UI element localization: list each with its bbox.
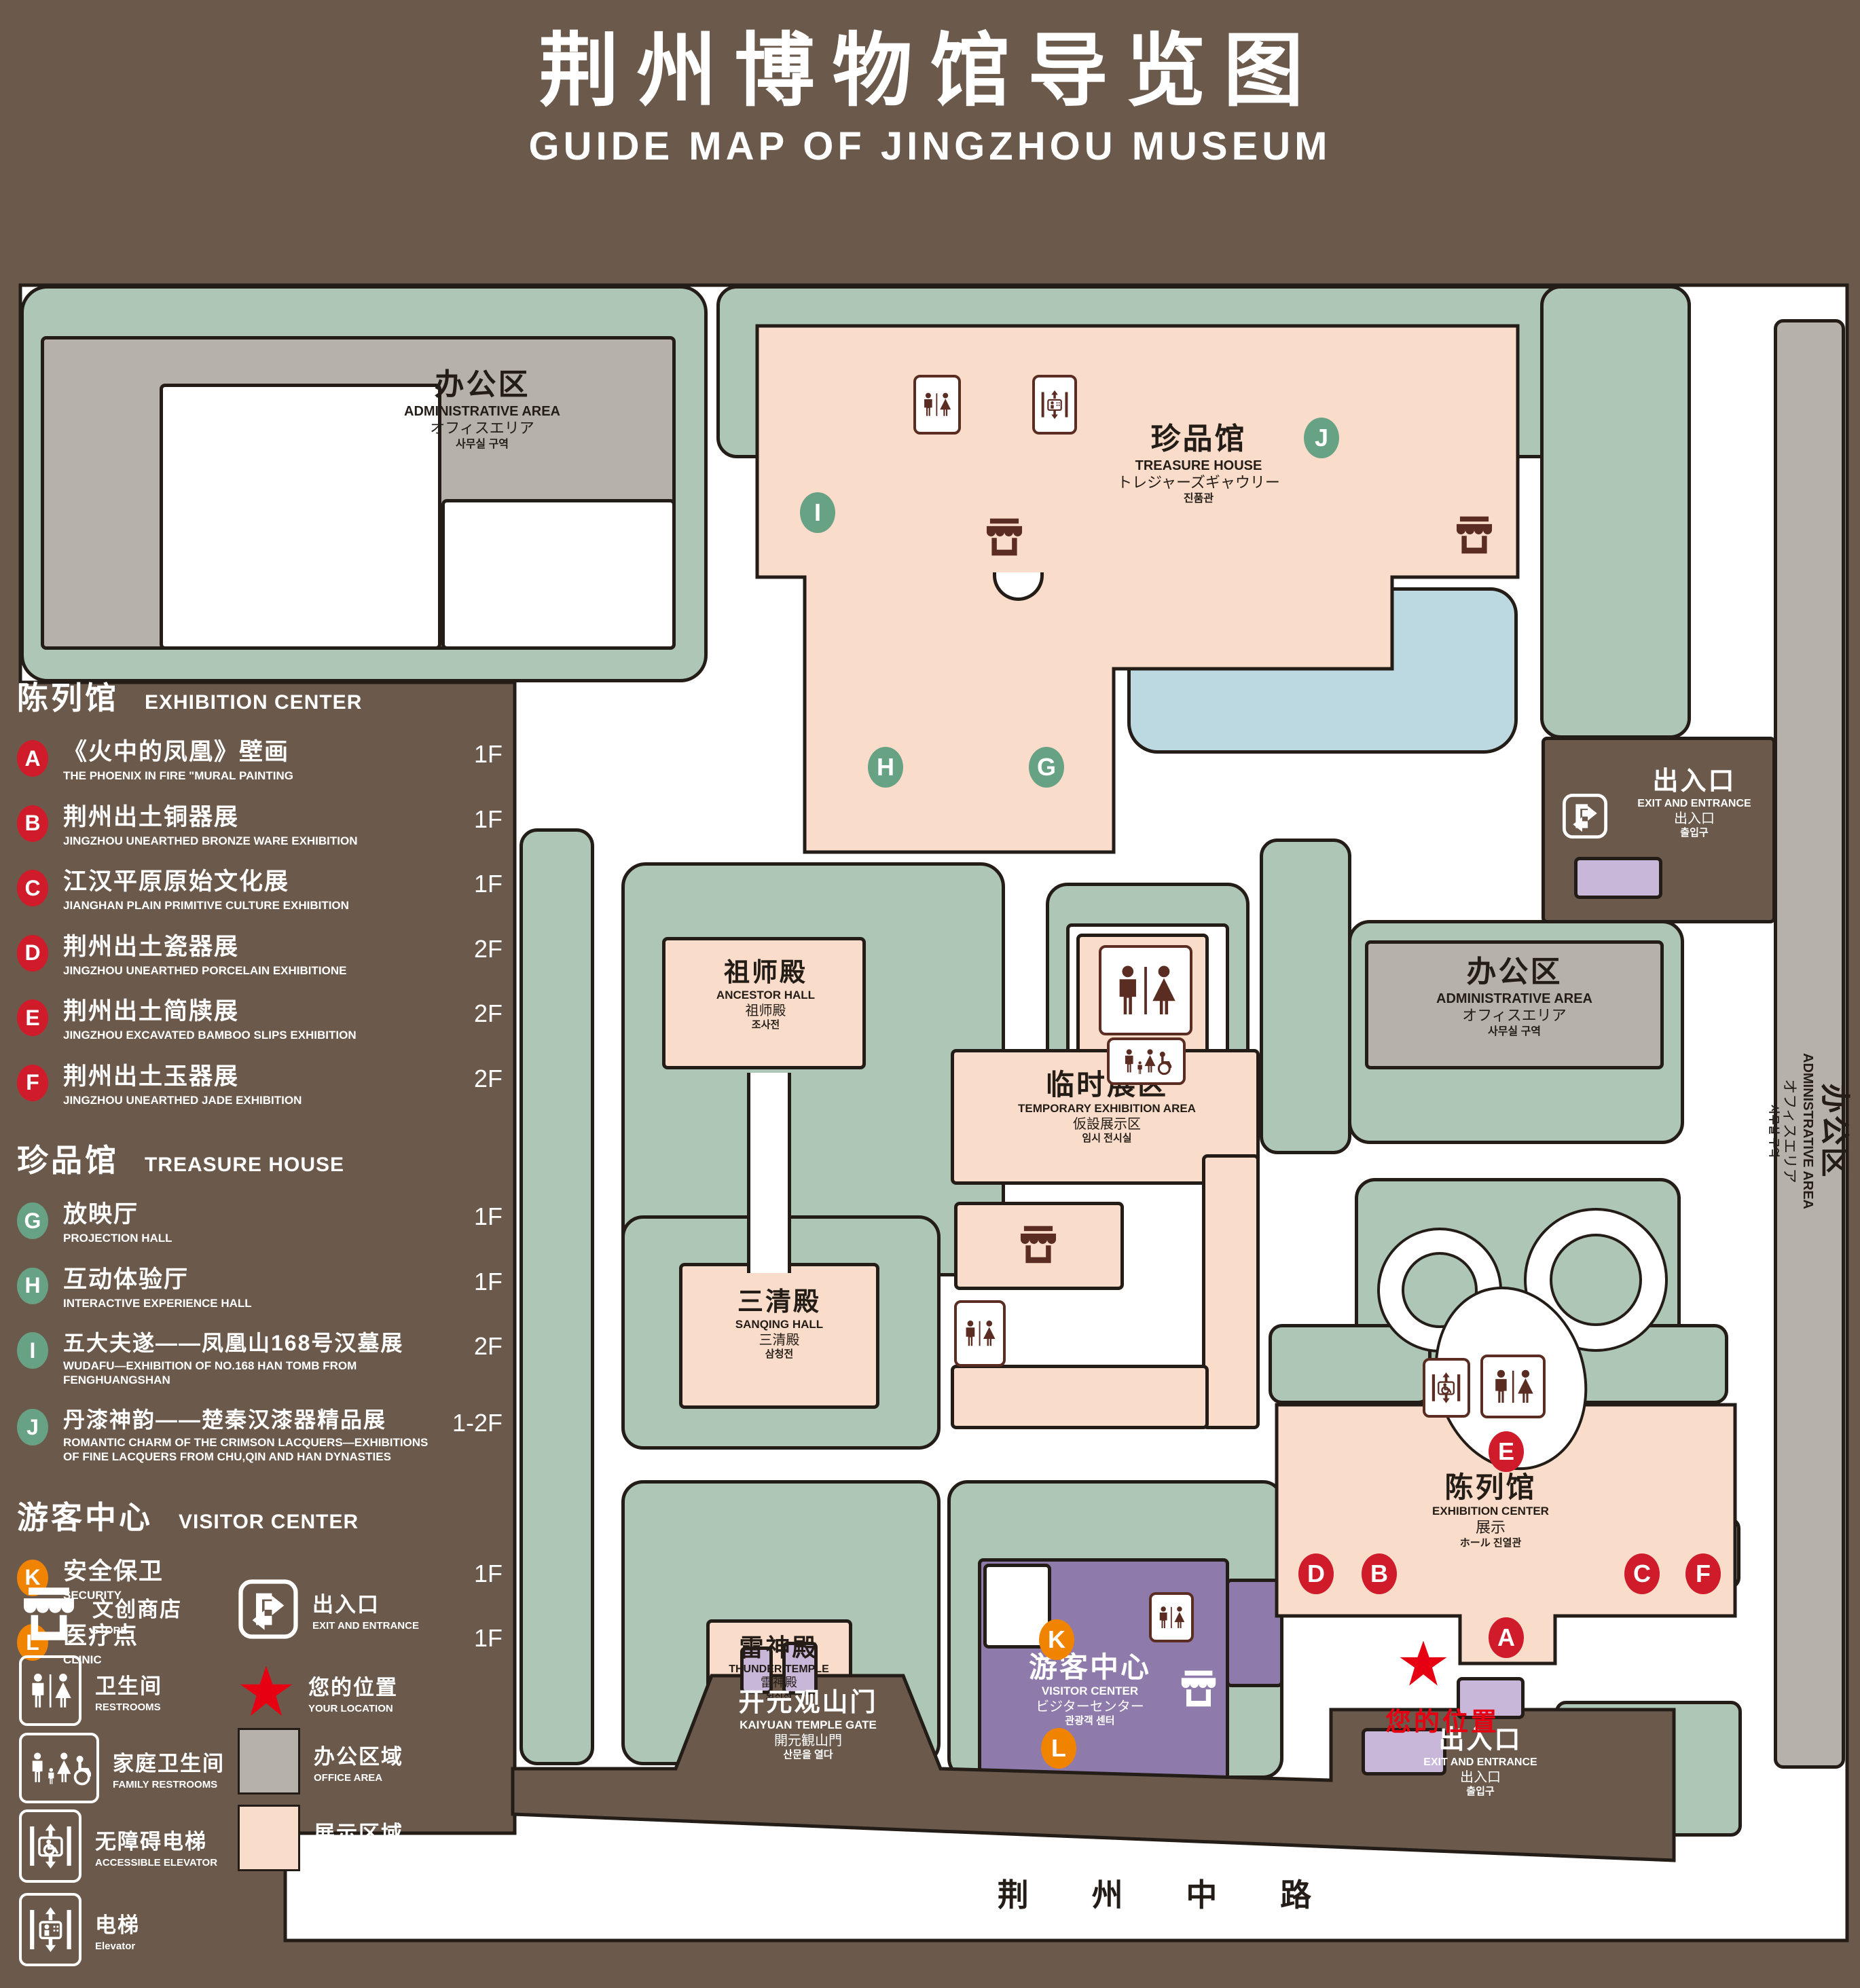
section-title-zh: 珍品馆: [17, 1136, 119, 1181]
item-zh: 荆州出土玉器展: [63, 1063, 441, 1090]
item-zh: 放映厅: [63, 1201, 441, 1228]
road-name: 荆 州 中 路: [937, 1871, 1399, 1915]
campus-left-strip: [519, 828, 594, 1765]
label-exit-top-right: 出入口 EXIT AND ENTRANCE 出入口 출입구: [1613, 766, 1776, 840]
admin-en: ADMINISTRATIVE AREA: [340, 403, 625, 420]
sanqing-ko: 삼청전: [682, 1348, 876, 1361]
admin-right-zh: 办公区: [1385, 954, 1643, 991]
admin-right-en: ADMINISTRATIVE AREA: [1385, 991, 1643, 1007]
guide-map-poster: 荆州博物馆导览图 GUIDE MAP OF JINGZHOU MUSEUM: [0, 0, 1860, 1988]
legend-item-g: G 放映厅 PROJECTION HALL 1F: [17, 1201, 503, 1246]
badge-b: B: [17, 805, 48, 842]
legend-symbol-elevator: 电梯 Elevator: [19, 1893, 140, 1966]
badge-g-marker: G: [1029, 747, 1064, 788]
ancestor-zh: 祖师殿: [669, 957, 862, 989]
temporary-ko: 임시 전시실: [961, 1133, 1253, 1145]
admin-strip-ja: オフィスエリア: [1780, 972, 1799, 1291]
visitor-zh: 游客中心: [988, 1650, 1192, 1685]
temporary-ja: 仮設展示区: [961, 1116, 1253, 1133]
legend-item-d: D 荆州出土瓷器展 JINGZHOU UNEARTHED PORCELAIN E…: [17, 934, 503, 978]
item-en: THE PHOENIX IN FIRE "MURAL PAINTING: [63, 769, 441, 783]
symbol-en: Elevator: [95, 1940, 140, 1952]
family-restroom-icon: [1107, 1037, 1186, 1085]
store-icon: [1017, 1222, 1059, 1267]
symbol-zh: 出入口: [312, 1587, 419, 1618]
badge-g: G: [17, 1202, 48, 1239]
ancestor-court: [621, 862, 1005, 1276]
family-restroom-icon: [19, 1733, 99, 1803]
exhibition-green-left: [1269, 1324, 1432, 1404]
label-gate: 开元观山门 KAIYUAN TEMPLE GATE 開元観山門 산문을 열다: [693, 1687, 924, 1762]
item-floor: 1F: [441, 1268, 503, 1296]
symbol-zh: 卫生间: [95, 1669, 162, 1699]
ancestor-en: ANCESTOR HALL: [669, 989, 862, 1003]
treasure-door-arc: [993, 572, 1044, 601]
item-zh: 五大夫遂——凤凰山168号汉墓展: [63, 1331, 441, 1356]
legend-symbol-office: 办公区域 OFFICE AREA: [238, 1728, 403, 1794]
item-en: JINGZHOU UNEARTHED PORCELAIN EXHIBITIONE: [63, 963, 441, 978]
item-zh: 《火中的凤凰》壁画: [63, 739, 441, 766]
campus-mid-strip: [1260, 839, 1351, 1154]
symbol-zh: 办公区域: [314, 1739, 403, 1770]
admin-right-ko: 사무실 구역: [1385, 1025, 1643, 1039]
section-title-en: TREASURE HOUSE: [145, 1154, 344, 1177]
exit-tr-ko: 출입구: [1613, 827, 1776, 839]
legend-sidebar: 陈列馆 EXHIBITION CENTER A 《火中的凤凰》壁画 THE PH…: [17, 674, 503, 1688]
admin-zh: 办公区: [340, 367, 625, 403]
item-floor: 1-2F: [441, 1409, 503, 1437]
item-floor: 2F: [441, 1065, 503, 1093]
symbol-en: YOUR LOCATION: [308, 1703, 398, 1714]
legend-symbol-family: 家庭卫生间 FAMILY RESTROOMS: [19, 1733, 225, 1803]
item-floor: 1F: [441, 1560, 503, 1588]
exit-icon: [1562, 793, 1608, 839]
badge-j: J: [17, 1409, 48, 1446]
item-floor: 1F: [441, 870, 503, 898]
symbol-zh: 无障碍电梯: [95, 1824, 217, 1855]
badge-i-marker: I: [800, 492, 835, 533]
restroom-icon: [1480, 1355, 1546, 1418]
office-area-swatch: [238, 1728, 300, 1794]
admin-ko: 사무실 구역: [340, 438, 625, 452]
sanqing-en: SANQING HALL: [682, 1318, 876, 1332]
badge-j-marker: J: [1304, 418, 1339, 458]
symbol-zh: 您的位置: [308, 1670, 398, 1701]
badge-e: E: [17, 999, 48, 1036]
admin-right-ja: オフィスエリア: [1385, 1007, 1643, 1025]
item-zh: 荆州出土简牍展: [63, 998, 441, 1025]
badge-d: D: [17, 935, 48, 972]
label-admin-top-left: 办公区 ADMINISTRATIVE AREA オフィスエリア 사무실 구역: [340, 367, 625, 451]
elevator-icon: [1032, 375, 1077, 435]
exhibition-line3: 展示: [1389, 1519, 1592, 1537]
store-icon: [1178, 1667, 1219, 1710]
badge-b-marker: B: [1362, 1553, 1397, 1594]
symbol-en: RESTROOMS: [95, 1701, 162, 1713]
thunder-en: THUNDER TEMPLE: [708, 1663, 850, 1676]
badge-h: H: [17, 1268, 48, 1304]
legend-section-treasure: 珍品馆 TREASURE HOUSE: [17, 1136, 503, 1181]
restroom-icon: [954, 1300, 1006, 1367]
section-title-en: EXHIBITION CENTER: [145, 691, 362, 714]
legend-symbol-exit: 出入口 EXIT AND ENTRANCE: [238, 1577, 419, 1642]
badge-f: F: [17, 1065, 48, 1101]
symbol-zh: 展示区域: [314, 1816, 403, 1847]
symbol-en: ACCESSIBLE ELEVATOR: [95, 1857, 217, 1869]
item-en: JIANGHAN PLAIN PRIMITIVE CULTURE EXHIBIT…: [63, 898, 441, 913]
legend-symbol-accessible-elevator: 无障碍电梯 ACCESSIBLE ELEVATOR: [19, 1809, 217, 1883]
exit-tr-en: EXIT AND ENTRANCE: [1613, 797, 1776, 811]
legend-symbol-store: 文创商店 STORE: [19, 1585, 182, 1642]
label-admin-strip: 办公区 ADMINISTRATIVE AREA オフィスエリア 사무실 구역: [1774, 319, 1845, 1769]
item-en: JINGZHOU UNEARTHED JADE EXHIBITION: [63, 1093, 441, 1107]
ancestor-ja: 祖师殿: [669, 1003, 862, 1019]
gate-en: KAIYUAN TEMPLE GATE: [693, 1718, 924, 1733]
badge-l-marker: L: [1041, 1728, 1076, 1769]
treasure-ja: トレジャーズギャウリー: [1059, 474, 1338, 492]
visitor-center-wing: [1226, 1579, 1283, 1687]
temporary-en: TEMPORARY EXHIBITION AREA: [961, 1102, 1253, 1116]
badge-f-marker: F: [1685, 1553, 1721, 1594]
exhibition-green-right: [1569, 1324, 1728, 1404]
item-zh: 江汉平原原始文化展: [63, 868, 441, 896]
exit-b-ja: 出入口: [1399, 1769, 1562, 1786]
admin-notch: [441, 499, 676, 650]
store-icon: [19, 1585, 79, 1642]
treasure-en: TREASURE HOUSE: [1059, 458, 1338, 474]
ancestor-path: [747, 1073, 791, 1273]
admin-strip-zh: 办公区: [1815, 972, 1853, 1291]
lake: [1127, 587, 1518, 754]
restroom-icon: [1099, 945, 1192, 1035]
admin-strip-ko: 사무실 구역: [1766, 972, 1780, 1291]
symbol-zh: 家庭卫生间: [113, 1746, 225, 1777]
item-en: WUDAFU—EXHIBITION OF NO.168 HAN TOMB FRO…: [63, 1359, 441, 1388]
item-en: ROMANTIC CHARM OF THE CRIMSON LACQUERS—E…: [63, 1435, 441, 1465]
label-treasure-house: 珍品馆 TREASURE HOUSE トレジャーズギャウリー 진품관: [1059, 421, 1338, 505]
item-zh: 荆州出土瓷器展: [63, 934, 441, 961]
item-zh: 互动体验厅: [63, 1266, 441, 1293]
accessible-elevator-icon: [1423, 1358, 1470, 1418]
legend-item-a: A 《火中的凤凰》壁画 THE PHOENIX IN FIRE "MURAL P…: [17, 739, 503, 784]
legend-item-h: H 互动体验厅 INTERACTIVE EXPERIENCE HALL 1F: [17, 1266, 503, 1311]
badge-h-marker: H: [868, 747, 903, 788]
thunder-zh: 雷神殿: [708, 1633, 850, 1663]
exhibition-green-se2: [1555, 1701, 1742, 1837]
exit-tr-ja: 出入口: [1613, 811, 1776, 827]
item-floor: 1F: [441, 1202, 503, 1231]
ancestor-ko: 조사전: [669, 1019, 862, 1031]
lake-island: [951, 621, 1104, 676]
your-location-star-icon: [238, 1665, 295, 1719]
item-en: JINGZHOU UNEARTHED BRONZE WARE EXHIBITIO…: [63, 834, 441, 848]
gate-block-top-right: [1574, 857, 1662, 899]
admin-strip-en: ADMINISTRATIVE AREA: [1798, 972, 1815, 1291]
admin-ja: オフィスエリア: [340, 420, 625, 438]
badge-e-marker: E: [1489, 1431, 1524, 1472]
store-icon: [983, 515, 1025, 559]
label-visitor-center: 游客中心 VISITOR CENTER ビジターセンター 관광객 센터: [988, 1650, 1192, 1728]
legend-symbol-location: 您的位置 YOUR LOCATION: [238, 1665, 398, 1719]
item-floor: 1F: [441, 1624, 503, 1653]
legend-item-e: E 荆州出土简牍展 JINGZHOU EXCAVATED BAMBOO SLIP…: [17, 998, 503, 1043]
elevator-icon: [19, 1893, 81, 1966]
symbol-zh: 电梯: [95, 1908, 140, 1938]
visitor-en: VISITOR CENTER: [988, 1685, 1192, 1699]
section-title-en: VISITOR CENTER: [179, 1511, 359, 1534]
badge-i: I: [17, 1332, 48, 1369]
restroom-icon: [19, 1655, 81, 1726]
temporary-bottom: [951, 1365, 1209, 1429]
display-area-swatch: [238, 1805, 300, 1871]
item-zh: 荆州出土铜器展: [63, 804, 441, 831]
symbol-en: STORE: [92, 1625, 182, 1636]
item-floor: 2F: [441, 935, 503, 963]
visitor-ja: ビジターセンター: [988, 1699, 1192, 1715]
accessible-elevator-icon: [19, 1809, 81, 1883]
badge-c-marker: C: [1624, 1553, 1660, 1594]
item-floor: 2F: [441, 999, 503, 1028]
exhibition-zh: 陈列馆: [1389, 1470, 1592, 1505]
symbol-en: FAMILY RESTROOMS: [113, 1779, 225, 1790]
label-sanqing: 三清殿 SANQING HALL 三清殿 삼청전: [682, 1287, 876, 1361]
campus-right-column: [1540, 285, 1691, 739]
symbol-en: EXIT AND ENTRANCE: [312, 1620, 419, 1632]
gate-zh: 开元观山门: [693, 1687, 924, 1718]
temporary-right: [1202, 1154, 1260, 1429]
symbol-en: OFFICE AREA: [314, 1772, 403, 1784]
sanqing-zh: 三清殿: [682, 1287, 876, 1318]
item-zh: 丹漆神韵——楚秦汉漆器精品展: [63, 1407, 441, 1433]
legend-section-visitor: 游客中心 VISITOR CENTER: [17, 1493, 503, 1538]
label-admin-right: 办公区 ADMINISTRATIVE AREA オフィスエリア 사무실 구역: [1385, 954, 1643, 1038]
poster-subtitle: GUIDE MAP OF JINGZHOU MUSEUM: [0, 124, 1860, 169]
legend-item-b: B 荆州出土铜器展 JINGZHOU UNEARTHED BRONZE WARE…: [17, 804, 503, 849]
badge-a: A: [17, 740, 48, 777]
symbol-zh: 文创商店: [92, 1592, 182, 1623]
symbol-en: DISPLAY AREA: [314, 1849, 403, 1860]
section-title-zh: 游客中心: [17, 1493, 153, 1538]
exit-tr-zh: 出入口: [1613, 766, 1776, 797]
item-floor: 2F: [441, 1332, 503, 1361]
section-title-zh: 陈列馆: [17, 674, 119, 718]
item-en: PROJECTION HALL: [63, 1231, 441, 1245]
poster-title: 荆州博物馆导览图: [0, 5, 1860, 122]
exit-b-en: EXIT AND ENTRANCE: [1399, 1756, 1562, 1769]
legend-item-i: I 五大夫遂——凤凰山168号汉墓展 WUDAFU—EXHIBITION OF …: [17, 1331, 503, 1387]
legend-item-c: C 江汉平原原始文化展 JIANGHAN PLAIN PRIMITIVE CUL…: [17, 868, 503, 913]
label-ancestor-hall: 祖师殿 ANCESTOR HALL 祖师殿 조사전: [669, 957, 862, 1032]
item-floor: 1F: [441, 805, 503, 834]
exit-icon: [238, 1577, 299, 1642]
badge-a-marker: A: [1489, 1617, 1524, 1658]
legend-item-j: J 丹漆神韵——楚秦汉漆器精品展 ROMANTIC CHARM OF THE C…: [17, 1407, 503, 1464]
label-exhibition: 陈列馆 EXHIBITION CENTER 展示 ホール 진열관: [1389, 1470, 1592, 1549]
badge-d-marker: D: [1298, 1553, 1334, 1594]
treasure-ko: 진품관: [1059, 492, 1338, 506]
item-en: JINGZHOU EXCAVATED BAMBOO SLIPS EXHIBITI…: [63, 1028, 441, 1042]
store-icon: [1453, 513, 1495, 557]
restroom-icon: [1149, 1592, 1194, 1642]
your-location-label: 您的位置: [1385, 1701, 1499, 1738]
restroom-icon: [913, 375, 961, 435]
visitor-ko: 관광객 센터: [988, 1715, 1192, 1727]
badge-c: C: [17, 870, 48, 906]
item-floor: 1F: [441, 740, 503, 769]
exit-b-ko: 출입구: [1399, 1786, 1562, 1798]
your-location-star-icon: [1399, 1640, 1448, 1689]
gate-ja: 開元観山門: [693, 1733, 924, 1749]
sanqing-ja: 三清殿: [682, 1332, 876, 1348]
exhibition-en: EXHIBITION CENTER: [1389, 1505, 1592, 1519]
gate-ko: 산문을 열다: [693, 1749, 924, 1761]
treasure-zh: 珍品馆: [1059, 421, 1338, 458]
legend-symbol-display: 展示区域 DISPLAY AREA: [238, 1805, 403, 1871]
legend-symbol-restrooms: 卫生间 RESTROOMS: [19, 1655, 162, 1726]
item-en: INTERACTIVE EXPERIENCE HALL: [63, 1296, 441, 1310]
legend-section-exhibition: 陈列馆 EXHIBITION CENTER: [17, 674, 503, 718]
legend-item-f: F 荆州出土玉器展 JINGZHOU UNEARTHED JADE EXHIBI…: [17, 1063, 503, 1108]
exhibition-line4: ホール 진열관: [1389, 1537, 1592, 1549]
badge-k-marker: K: [1039, 1619, 1074, 1660]
